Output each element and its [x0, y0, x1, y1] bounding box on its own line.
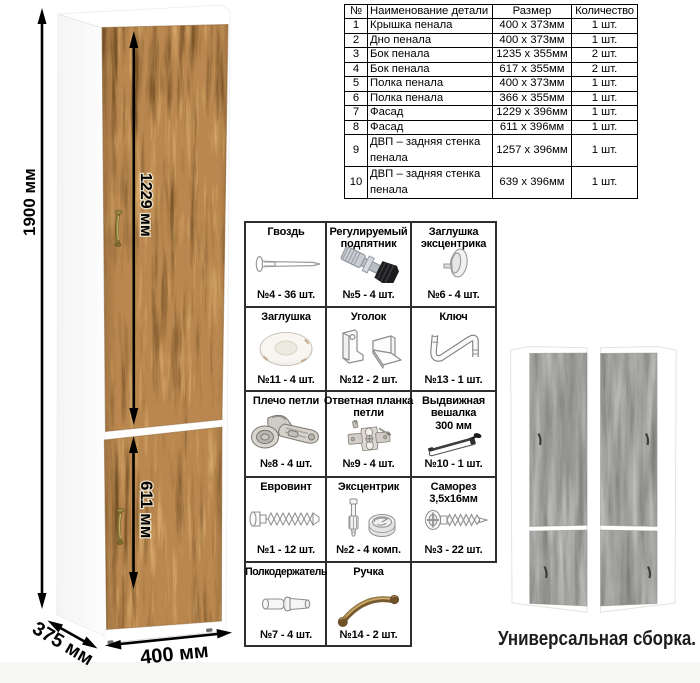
svg-text:1229 мм: 1229 мм — [137, 173, 154, 237]
svg-text:1900 мм: 1900 мм — [20, 168, 39, 236]
svg-text:611 мм: 611 мм — [137, 481, 156, 538]
svg-text:400 мм: 400 мм — [139, 640, 209, 669]
svg-text:Универсальная сборка.: Универсальная сборка. — [498, 628, 696, 650]
